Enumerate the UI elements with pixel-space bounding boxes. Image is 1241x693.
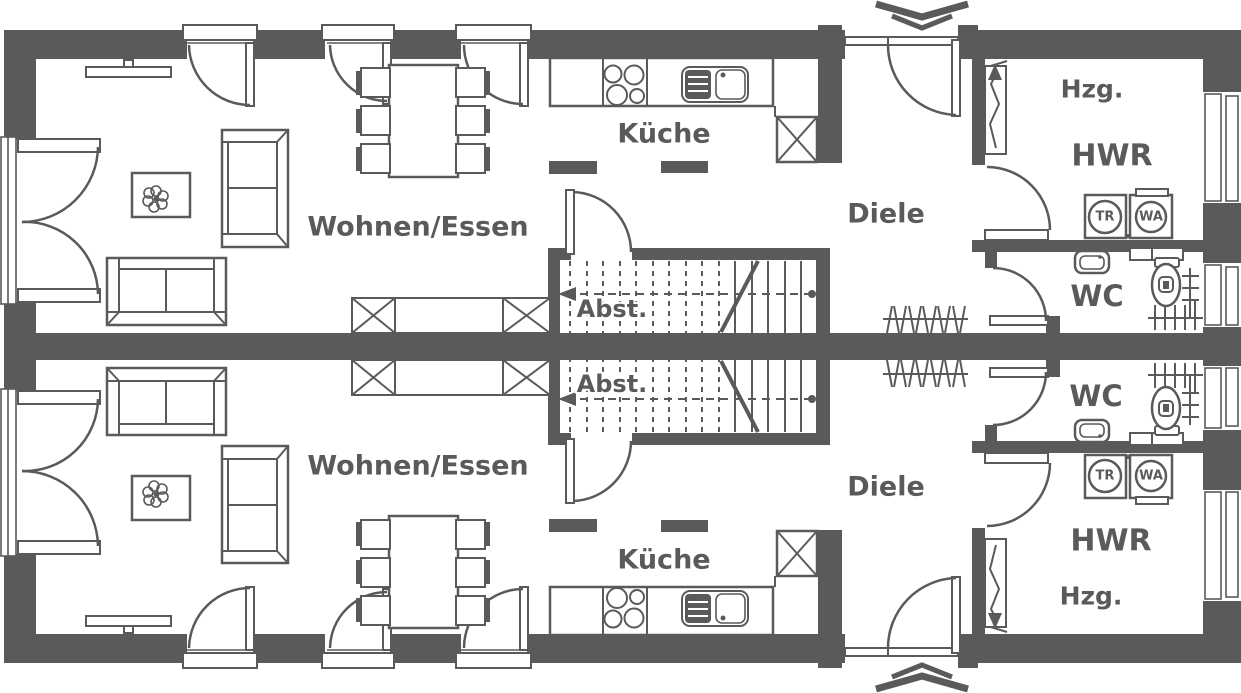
dining-table xyxy=(389,65,458,177)
chimney-block xyxy=(352,298,550,333)
stair-enclosure-wall xyxy=(816,248,830,333)
room-label-storage: Abst. xyxy=(577,370,648,398)
french-door xyxy=(1,137,100,304)
room-label-living-dining: Wohnen/Essen xyxy=(307,451,528,482)
floor-plan-canvas: Wohnen/Essen Küche Diele Abst. HWR Hzg. … xyxy=(0,0,1241,693)
sofa-horizontal xyxy=(107,258,226,325)
hall-utility-wall xyxy=(972,59,985,165)
kitchen-wall-stub xyxy=(549,161,597,174)
wc-wall-stub xyxy=(985,252,997,268)
electric-riser-icon xyxy=(984,61,1007,154)
room-label-heating: Hzg. xyxy=(1061,75,1124,104)
duplex-floor-plan: Wohnen/Essen Küche Diele Abst. HWR Hzg. … xyxy=(0,0,1241,693)
room-label-living-dining: Wohnen/Essen xyxy=(307,212,528,243)
appliance-label-dryer: TR xyxy=(1096,469,1115,484)
room-label-utility: HWR xyxy=(1070,524,1151,559)
coffee-table xyxy=(132,173,190,217)
room-label-kitchen: Küche xyxy=(617,545,710,576)
appliance-label-dryer: TR xyxy=(1096,210,1115,225)
wc-door xyxy=(990,268,1048,325)
shaft-icon xyxy=(777,117,817,162)
sideboard xyxy=(86,60,171,77)
utility-door xyxy=(985,167,1050,240)
room-label-hall: Diele xyxy=(847,199,925,230)
room-label-heating: Hzg. xyxy=(1060,582,1123,611)
wc-window xyxy=(1203,263,1241,327)
toilet-icon xyxy=(1152,258,1180,306)
radiator-icon xyxy=(883,306,968,333)
room-label-utility: HWR xyxy=(1071,139,1152,174)
terrace-door xyxy=(183,25,257,106)
kitchen-wall-stub xyxy=(661,161,708,173)
sink-icon xyxy=(682,67,748,102)
entrance-arrow-icon xyxy=(876,4,968,28)
sofa-vertical xyxy=(222,130,288,247)
furniture xyxy=(86,60,550,333)
washbasin-icon xyxy=(1075,251,1109,273)
room-label-wc: WC xyxy=(1070,279,1123,313)
appliance-label-washer: WA xyxy=(1139,469,1163,484)
room-label-kitchen: Küche xyxy=(617,119,710,150)
storage-door xyxy=(566,190,631,254)
entrance-door xyxy=(845,37,960,116)
room-label-storage: Abst. xyxy=(577,295,648,323)
room-label-wc: WC xyxy=(1069,379,1122,413)
stair-enclosure-wall xyxy=(632,248,818,260)
room-label-hall: Diele xyxy=(847,472,925,503)
party-wall xyxy=(4,333,1241,347)
utility-window xyxy=(1203,92,1241,203)
appliance-label-washer: WA xyxy=(1139,210,1163,225)
